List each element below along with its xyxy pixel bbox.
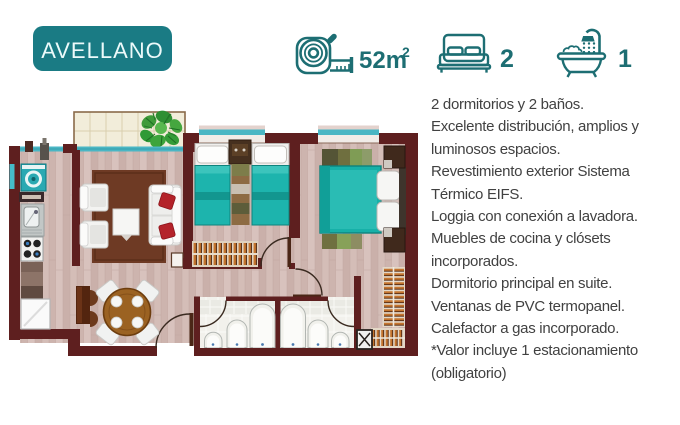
svg-text:52m: 52m xyxy=(359,47,407,74)
svg-text:2: 2 xyxy=(402,44,410,60)
svg-text:2: 2 xyxy=(500,45,514,73)
svg-text:1: 1 xyxy=(618,45,632,73)
